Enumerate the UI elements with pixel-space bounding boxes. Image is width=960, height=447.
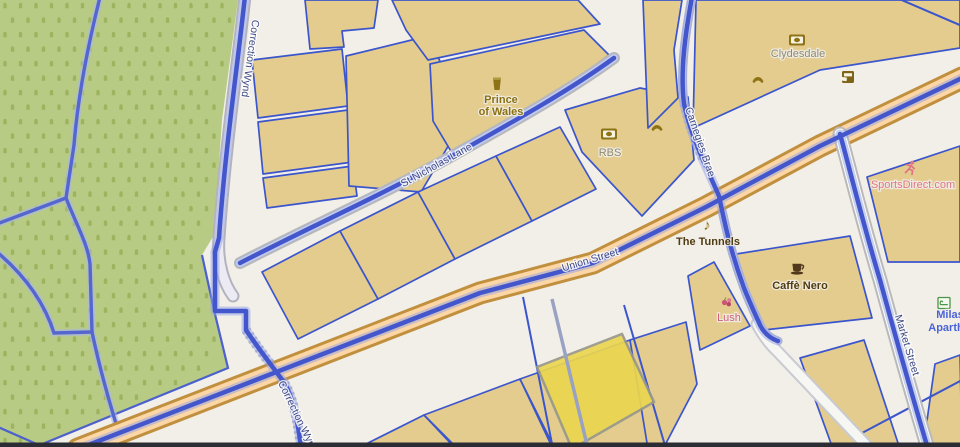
beer-icon [493,78,501,91]
poi-label-caffe-nero: Caffè Nero [772,280,828,292]
map-canvas[interactable]: ♪ Correction Wynd Correction Wynd St Nic… [0,0,960,447]
building [252,49,348,118]
poi-label-milas-1: Milas [936,309,960,321]
atm-icon [841,71,854,83]
poi-label-prince-of-wales-2: of Wales [479,106,524,118]
poi-label-sportsdirect: SportsDirect.com [871,179,955,191]
bottom-edge-strip [0,443,960,447]
poi-label-lush: Lush [717,312,741,324]
bank-icon [789,35,805,46]
poi-label-the-tunnels: The Tunnels [676,236,740,248]
map-viewport: ♪ Correction Wynd Correction Wynd St Nic… [0,0,960,447]
building [258,110,353,174]
poi-label-clydesdale: Clydesdale [771,48,825,60]
music-note-icon: ♪ [703,217,711,234]
poi-label-milas-2: Aparth [928,322,960,334]
poi-label-prince-of-wales-1: Prince [484,94,518,106]
poi-label-rbs: RBS [599,147,622,159]
bank-icon [601,129,617,140]
hotel-bed-icon [938,298,950,309]
